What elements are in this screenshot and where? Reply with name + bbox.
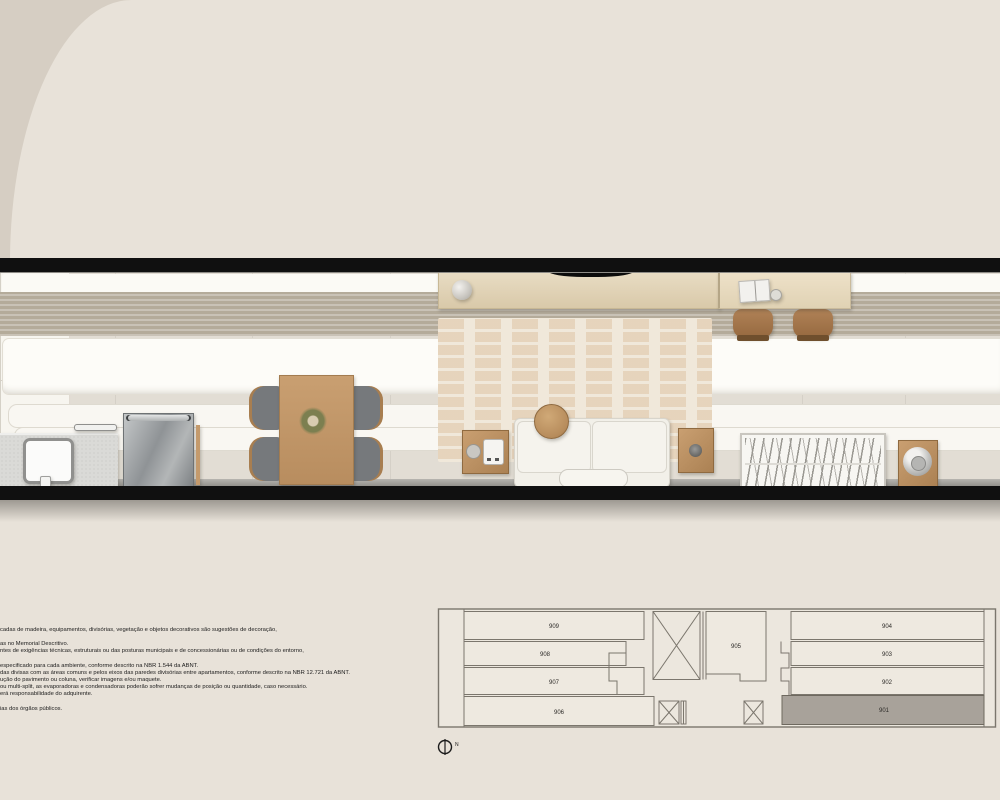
desk-chair: [793, 309, 833, 338]
north-compass-icon: N: [436, 737, 468, 757]
disclaimer-line: ução do pavimento ou coluna, verificar i…: [0, 677, 460, 684]
plan-bottom-wall: [0, 486, 1000, 500]
unit-label-904: 904: [882, 624, 893, 630]
unit-label-909: 909: [549, 624, 560, 630]
plan-top-wall: [0, 258, 1000, 273]
round-side-table: [534, 404, 569, 439]
keyplan-diagram: 909 908 907 906 905 904 903 902 901: [437, 604, 997, 734]
side-table-right: [678, 428, 714, 473]
dining-chair: [351, 386, 380, 430]
bench-slats: [745, 438, 881, 487]
tv-console: [438, 272, 720, 309]
sofa-cushion: [592, 421, 667, 473]
table-plant: [299, 407, 327, 435]
open-book: [738, 279, 770, 303]
unit-label-902: 902: [882, 680, 893, 686]
decor-dish: [466, 444, 481, 459]
nightstand: [898, 440, 938, 487]
plan-drop-shadow: [0, 500, 1000, 522]
table-lamp: [903, 447, 932, 476]
slatted-bench: [740, 433, 886, 492]
disclaimer-line: ias dos órgãos públicos.: [0, 706, 460, 713]
marketing-floorplan-page: 909 908 907 906 905 904 903 902 901 N ca…: [0, 0, 1000, 800]
compass-north-label: N: [455, 742, 459, 748]
dining-chair: [252, 437, 281, 481]
dining-chair: [351, 437, 380, 481]
unit-label-908: 908: [540, 652, 551, 658]
disclaimer-line: as no Memorial Descritivo.: [0, 641, 460, 648]
unit-label-901: 901: [879, 708, 890, 714]
washing-machine: [123, 413, 194, 487]
dining-chair: [252, 386, 281, 430]
disclaimer-line: especificado para cada ambiente, conform…: [0, 663, 460, 670]
disclaimer-line: das divisas com as áreas comuns e pelos …: [0, 670, 460, 677]
disclaimer-line: cadas de madeira, equipamentos, divisóri…: [0, 627, 460, 634]
disclaimer-line: ou multi-split, as evaporadoras e conden…: [0, 684, 460, 691]
unit-label-906: 906: [554, 710, 565, 716]
decor-sculpture: [452, 280, 472, 300]
corner-curve-overlay: [10, 0, 1000, 262]
cutting-board: [196, 425, 200, 485]
vase: [689, 444, 702, 457]
unit-label-905: 905: [731, 644, 742, 650]
disclaimer-line: ntes de exigências técnicas, estruturais…: [0, 648, 460, 655]
unit-label-907: 907: [549, 680, 560, 686]
washer-handle: [126, 415, 191, 421]
bed: [0, 272, 69, 450]
unit-label-903: 903: [882, 652, 893, 658]
speaker: [483, 439, 504, 465]
towel-bar: [74, 424, 117, 431]
desk-chair: [733, 309, 773, 338]
disclaimer-line: erá responsabilidade do adquirente.: [0, 691, 460, 698]
floorplan-floor: [0, 272, 1000, 486]
side-table-left: [462, 430, 509, 474]
disclaimer-text-block: cadas de madeira, equipamentos, divisóri…: [0, 627, 460, 713]
floorplan-render: [0, 258, 1000, 522]
coffee-cup: [770, 289, 782, 301]
